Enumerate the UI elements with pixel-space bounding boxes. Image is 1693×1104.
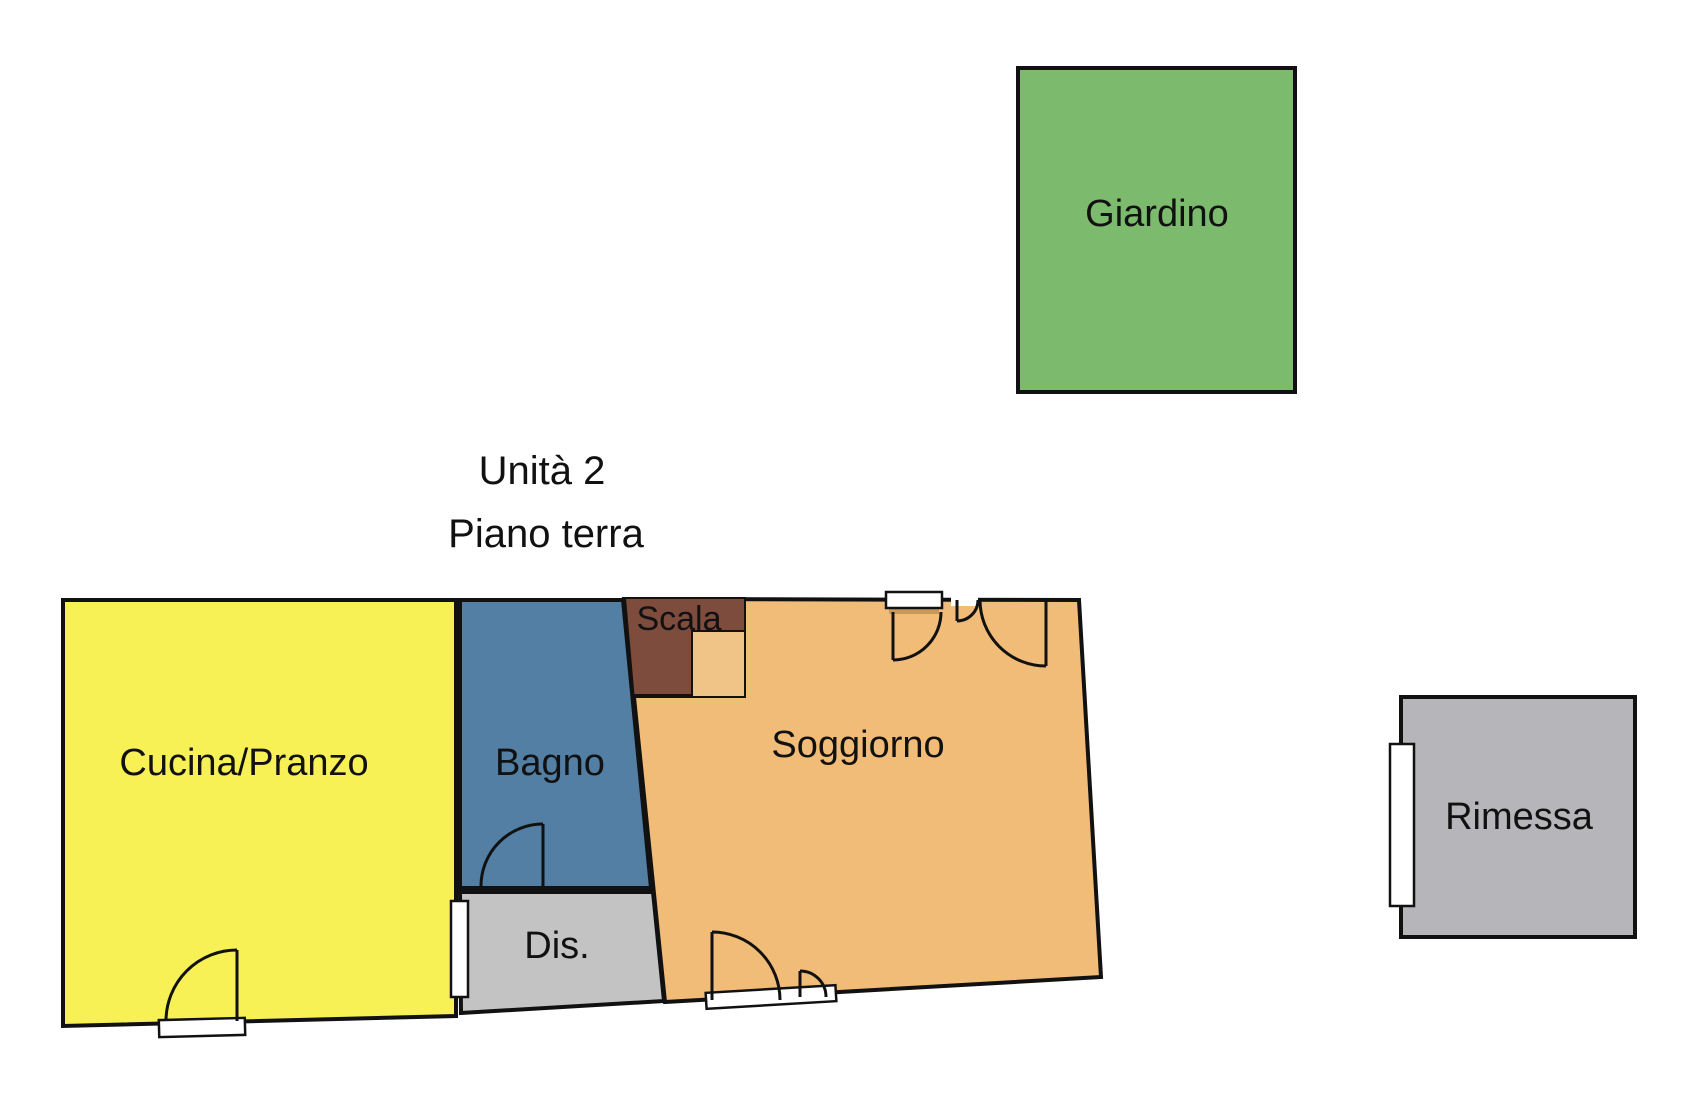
- title-unit: Unità 2: [479, 449, 606, 493]
- door-rimessa: [1390, 744, 1414, 906]
- label-rimessa: Rimessa: [1445, 796, 1594, 838]
- floor-plan-page: Unità 2 Piano terra Giardino Cucina/Pran…: [0, 0, 1693, 1104]
- door-sill-cucina: [159, 1018, 245, 1037]
- floor-plan-unit: [63, 592, 1101, 1037]
- door-dis-opening: [451, 901, 468, 997]
- floor-plan-canvas: Unità 2 Piano terra Giardino Cucina/Pran…: [0, 0, 1693, 1104]
- label-dis: Dis.: [524, 925, 589, 967]
- label-soggiorno: Soggiorno: [771, 724, 944, 766]
- wall-opening-top: [951, 594, 978, 606]
- label-scala: Scala: [636, 600, 721, 638]
- title-floor: Piano terra: [448, 512, 644, 556]
- window-top: [886, 592, 942, 608]
- room-cucina-pranzo: [63, 600, 456, 1026]
- label-bagno: Bagno: [495, 742, 605, 784]
- label-cucina-pranzo: Cucina/Pranzo: [119, 742, 368, 784]
- label-giardino: Giardino: [1085, 193, 1229, 235]
